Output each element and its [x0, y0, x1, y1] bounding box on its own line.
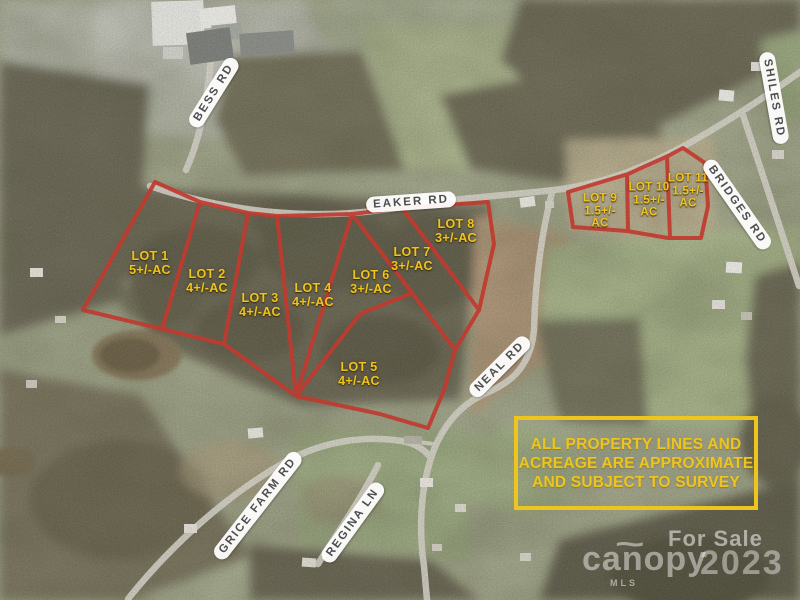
- lot-label-3: LOT 3 4+/-AC: [239, 291, 281, 319]
- aerial-property-map: BESS RD EAKER RD SHILES RD BRIDGES RD NE…: [0, 0, 800, 600]
- lot-label-2: LOT 2 4+/-AC: [186, 267, 228, 295]
- lot-label-7: LOT 7 3+/-AC: [391, 245, 433, 273]
- lot-number: LOT 4: [292, 281, 334, 295]
- disclaimer-line: ALL PROPERTY LINES AND: [518, 435, 754, 454]
- disclaimer-line: AND SUBJECT TO SURVEY: [518, 473, 754, 492]
- lot-label-1: LOT 1 5+/-AC: [129, 249, 171, 277]
- lot-number: LOT 11: [668, 172, 708, 185]
- lot-number: LOT 3: [239, 291, 281, 305]
- lot-acreage: 1.5+/-: [583, 205, 617, 218]
- lot-number: LOT 9: [583, 192, 617, 205]
- lot-acreage: 3+/-AC: [350, 282, 392, 296]
- lot-number: LOT 2: [186, 267, 228, 281]
- lot-label-11: LOT 11 1.5+/- AC: [668, 172, 708, 210]
- lot-label-5: LOT 5 4+/-AC: [338, 360, 380, 388]
- lot-label-9: LOT 9 1.5+/- AC: [583, 192, 617, 230]
- lot-number: LOT 10: [629, 181, 670, 194]
- lot-number: LOT 8: [435, 217, 477, 231]
- lot-acreage-unit: AC: [668, 197, 708, 210]
- lot-acreage: 4+/-AC: [292, 295, 334, 309]
- watermark-year: 2023: [700, 544, 784, 583]
- lot-label-6: LOT 6 3+/-AC: [350, 268, 392, 296]
- lot-acreage: 4+/-AC: [186, 281, 228, 295]
- canopy-tilde-mark: ~: [615, 528, 645, 562]
- lot-acreage: 3+/-AC: [435, 231, 477, 245]
- aerial-photo: [0, 0, 800, 600]
- lot-acreage-unit: AC: [629, 206, 670, 219]
- lot-label-4: LOT 4 4+/-AC: [292, 281, 334, 309]
- watermark-mls: MLS: [610, 578, 638, 588]
- lot-acreage: 4+/-AC: [239, 305, 281, 319]
- lot-acreage: 3+/-AC: [391, 259, 433, 273]
- lot-acreage: 4+/-AC: [338, 374, 380, 388]
- lot-acreage: 5+/-AC: [129, 263, 171, 277]
- lot-number: LOT 7: [391, 245, 433, 259]
- lot-acreage: 1.5+/-: [629, 194, 670, 207]
- lot-acreage: 1.5+/-: [668, 185, 708, 198]
- lot-label-8: LOT 8 3+/-AC: [435, 217, 477, 245]
- disclaimer-box: ALL PROPERTY LINES AND ACREAGE ARE APPRO…: [514, 416, 758, 510]
- lot-number: LOT 1: [129, 249, 171, 263]
- lot-number: LOT 6: [350, 268, 392, 282]
- lot-number: LOT 5: [338, 360, 380, 374]
- lot-acreage-unit: AC: [583, 217, 617, 230]
- lot-label-10: LOT 10 1.5+/- AC: [629, 181, 670, 219]
- disclaimer-line: ACREAGE ARE APPROXIMATE: [518, 454, 754, 473]
